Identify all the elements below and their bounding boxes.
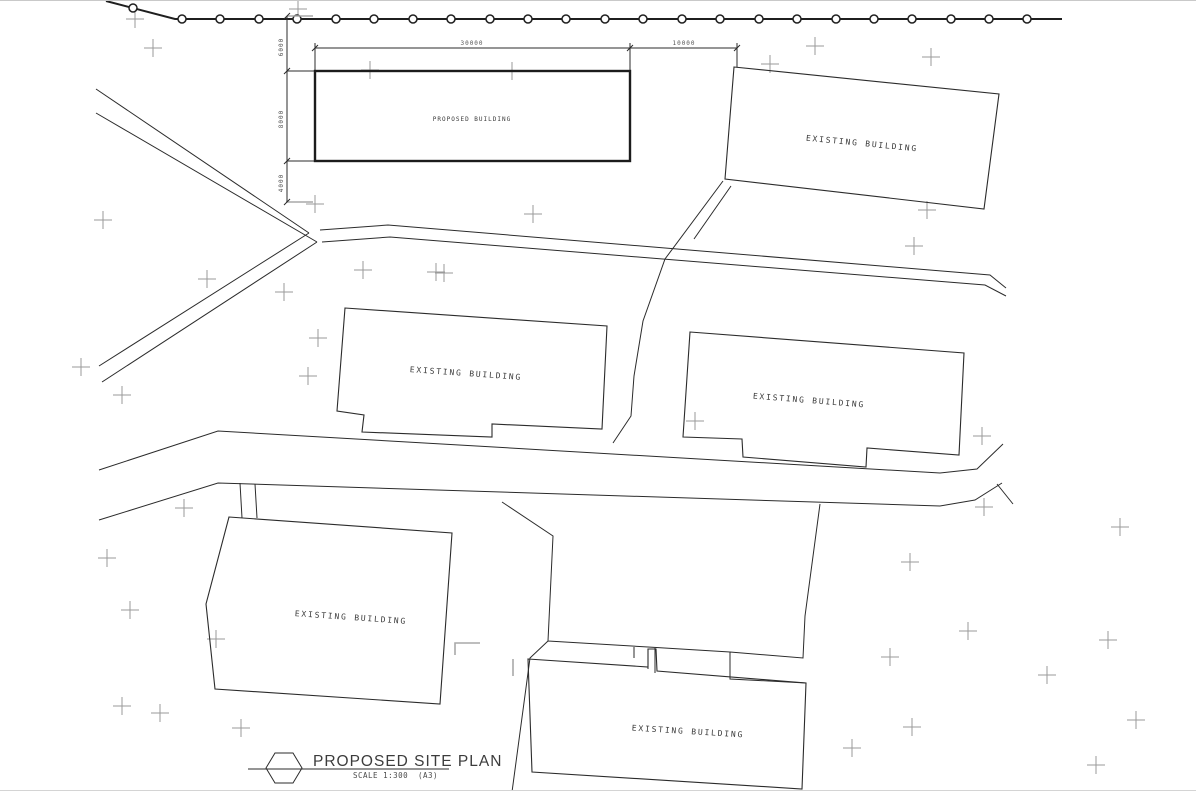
dimension-building-width: 30000 [460, 40, 483, 47]
road-lower-left-branch [99, 233, 317, 382]
existing-building-centre-east-label: EXISTING BUILDING [753, 392, 866, 410]
existing-building-north-east-label: EXISTING BUILDING [806, 134, 919, 154]
drawing-scale: SCALE 1:300 [353, 771, 408, 780]
boundary-fence [106, 1, 1062, 23]
dimension-lines [287, 16, 737, 202]
fence-line [106, 1, 1062, 19]
dimension-rear-margin: 4000 [278, 174, 285, 192]
existing-building-south-centre-outline [528, 649, 806, 789]
dimension-front-setback: 6000 [278, 38, 285, 56]
parcel-boundary-centre [502, 502, 820, 791]
footpath-north-east [613, 181, 731, 443]
existing-building-centre-west: EXISTING BUILDING [337, 308, 607, 437]
existing-building-south-west-label: EXISTING BUILDING [295, 609, 408, 626]
site-plan-sheet: 30000 10000 6000 8000 4000 PROPOSED BUIL… [0, 0, 1196, 791]
fence-post [129, 4, 137, 12]
dimension-building-depth: 8000 [278, 110, 285, 128]
survey-cross-markers [72, 1, 1145, 774]
proposed-building: PROPOSED BUILDING [315, 71, 630, 161]
roads-and-paths [96, 16, 1013, 791]
dimension-side-offset: 10000 [672, 40, 695, 47]
dimension-annotations: 30000 10000 6000 8000 4000 [278, 13, 740, 205]
site-plan-drawing: 30000 10000 6000 8000 4000 PROPOSED BUIL… [0, 1, 1196, 791]
drawing-title: PROPOSED SITE PLAN [313, 753, 502, 770]
existing-building-south-centre: EXISTING BUILDING [528, 649, 806, 789]
title-block: PROPOSED SITE PLAN SCALE 1:300 (A3) [248, 753, 502, 783]
road-main-upper [320, 225, 1006, 296]
footpath-south-west [240, 483, 257, 518]
yard-detail-ticks [634, 647, 655, 673]
survey-cross-path [72, 1, 1145, 774]
existing-building-south-centre-label: EXISTING BUILDING [632, 724, 745, 740]
road-main-lower [99, 431, 1013, 520]
existing-building-centre-east: EXISTING BUILDING [683, 332, 964, 467]
title-hexagon-symbol [266, 753, 302, 783]
existing-building-north-east: EXISTING BUILDING [725, 67, 999, 209]
existing-building-south-west: EXISTING BUILDING [206, 517, 452, 704]
proposed-building-label: PROPOSED BUILDING [433, 116, 511, 123]
existing-building-centre-west-label: EXISTING BUILDING [410, 365, 523, 382]
drawing-sheet-size: (A3) [418, 771, 438, 780]
gray-corner-bracket [455, 643, 513, 676]
